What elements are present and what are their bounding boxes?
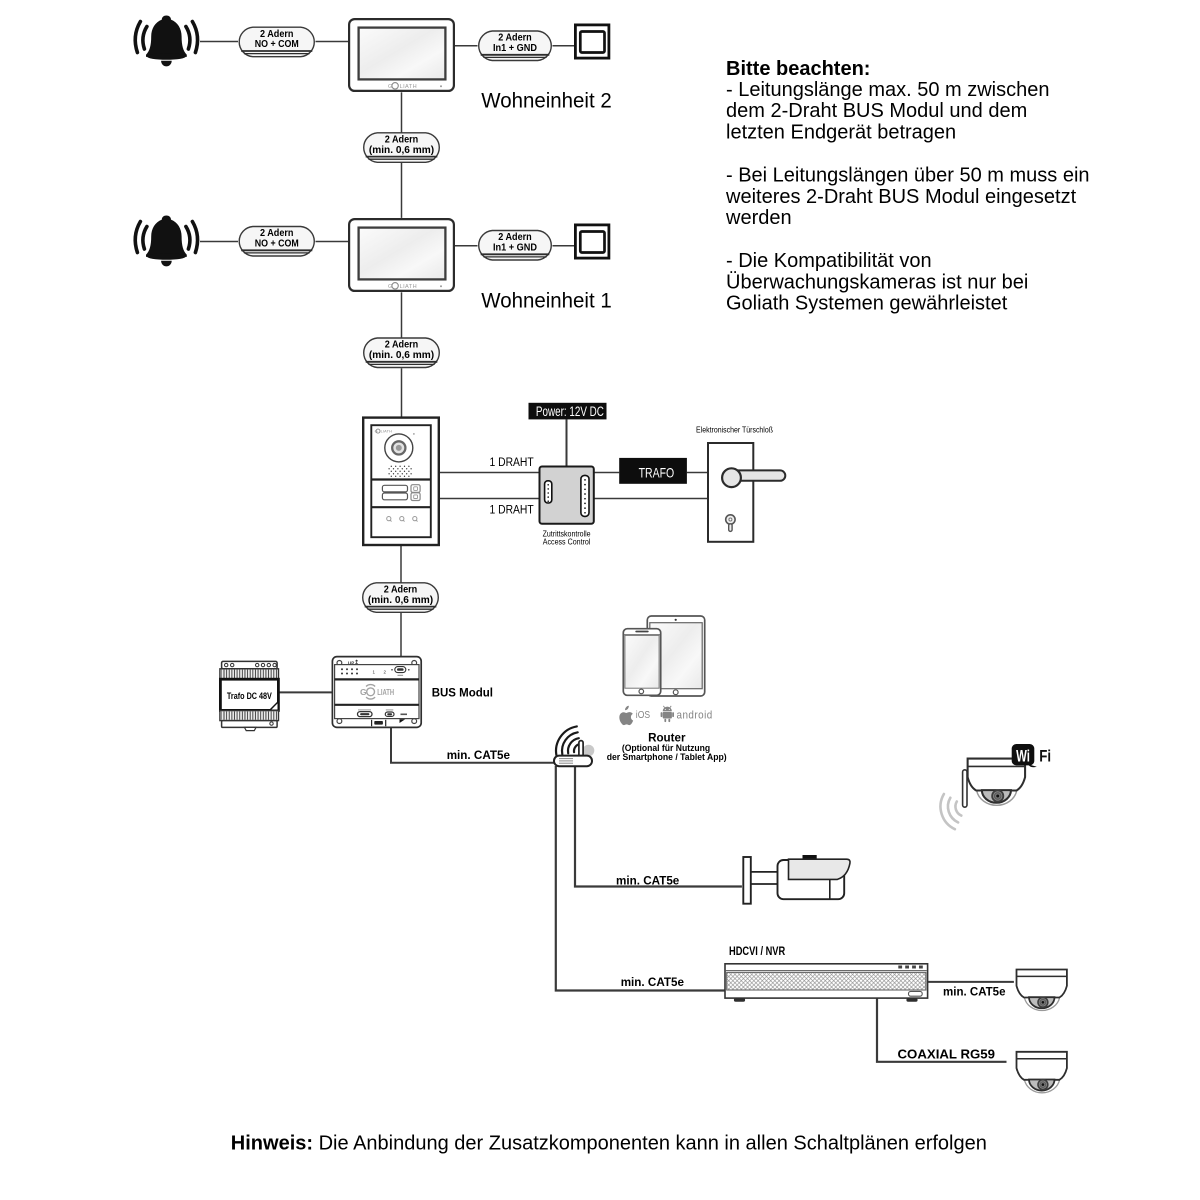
- svg-text:BUS Modul: BUS Modul: [432, 685, 493, 699]
- svg-text:In1 + GND: In1 + GND: [493, 243, 537, 254]
- svg-text:Elektronischer Türschloß: Elektronischer Türschloß: [696, 425, 773, 435]
- svg-text:TRAFO: TRAFO: [639, 464, 675, 480]
- svg-text:2 Adern: 2 Adern: [498, 33, 532, 44]
- svg-text:Trafo DC 48V: Trafo DC 48V: [227, 691, 272, 701]
- svg-text:2 Adern: 2 Adern: [385, 340, 419, 351]
- svg-text:min. CAT5e: min. CAT5e: [943, 984, 1006, 998]
- svg-text:NO + COM: NO + COM: [255, 239, 299, 250]
- svg-text:2 Adern: 2 Adern: [498, 232, 532, 243]
- svg-text:(min. 0,6 mm): (min. 0,6 mm): [368, 595, 433, 606]
- svg-text:LIATH: LIATH: [381, 430, 393, 434]
- svg-text:dem 2-Draht BUS Modul und dem: dem 2-Draht BUS Modul und dem: [726, 100, 1027, 122]
- svg-text:Bitte beachten:: Bitte beachten:: [726, 58, 870, 80]
- svg-text:In1 + GND: In1 + GND: [493, 43, 537, 54]
- svg-text:letzten Endgerät betragen: letzten Endgerät betragen: [726, 121, 956, 143]
- svg-text:2 Adern: 2 Adern: [260, 228, 294, 239]
- svg-text:Wohneinheit 2: Wohneinheit 2: [481, 90, 611, 113]
- svg-text:Power: 12V DC: Power: 12V DC: [536, 404, 604, 419]
- svg-text:LIATH: LIATH: [377, 687, 394, 697]
- svg-text:HDCVI / NVR: HDCVI / NVR: [729, 944, 785, 958]
- svg-text:Access Control: Access Control: [543, 536, 591, 546]
- svg-text:(min. 0,6 mm): (min. 0,6 mm): [369, 145, 434, 156]
- svg-text:Goliath Systemen gewährleistet: Goliath Systemen gewährleistet: [726, 293, 1008, 315]
- svg-text:Hinweis: Die Anbindung der Zus: Hinweis: Die Anbindung der Zusatzkompone…: [231, 1133, 987, 1155]
- svg-text:min. CAT5e: min. CAT5e: [447, 748, 511, 762]
- svg-text:min. CAT5e: min. CAT5e: [616, 874, 680, 888]
- svg-text:min. CAT5e: min. CAT5e: [621, 975, 685, 989]
- svg-text:weiteres 2-Draht BUS Modul ein: weiteres 2-Draht BUS Modul eingesetzt: [725, 186, 1077, 208]
- svg-text:iOS: iOS: [636, 709, 650, 721]
- svg-text:der Smartphone / Tablet App): der Smartphone / Tablet App): [607, 752, 727, 763]
- svg-text:1 DRAHT: 1 DRAHT: [490, 503, 535, 517]
- svg-text:- Leitungslänge max. 50 m zwis: - Leitungslänge max. 50 m zwischen: [726, 79, 1050, 101]
- svg-text:G: G: [360, 687, 367, 697]
- svg-text:NO + COM: NO + COM: [255, 39, 299, 50]
- svg-text:android: android: [677, 709, 713, 721]
- svg-text:Fi: Fi: [1039, 746, 1051, 765]
- svg-text:- Bei Leitungslängen über 50 m: - Bei Leitungslängen über 50 m muss ein: [726, 165, 1090, 187]
- svg-text:COAXIAL RG59: COAXIAL RG59: [898, 1046, 996, 1061]
- svg-text:(min. 0,6 mm): (min. 0,6 mm): [369, 350, 434, 361]
- svg-text:werden: werden: [725, 207, 792, 229]
- svg-text:1 DRAHT: 1 DRAHT: [490, 455, 535, 469]
- svg-text:2 Adern: 2 Adern: [260, 29, 294, 40]
- svg-text:Wi: Wi: [1016, 746, 1030, 765]
- svg-text:2 Adern: 2 Adern: [384, 584, 418, 595]
- svg-text:Wohneinheit 1: Wohneinheit 1: [481, 290, 611, 313]
- svg-text:Überwachungskameras ist nur be: Überwachungskameras ist nur bei: [726, 271, 1028, 293]
- svg-text:- Die Kompatibilität von: - Die Kompatibilität von: [726, 250, 932, 272]
- svg-text:2 Adern: 2 Adern: [385, 134, 419, 145]
